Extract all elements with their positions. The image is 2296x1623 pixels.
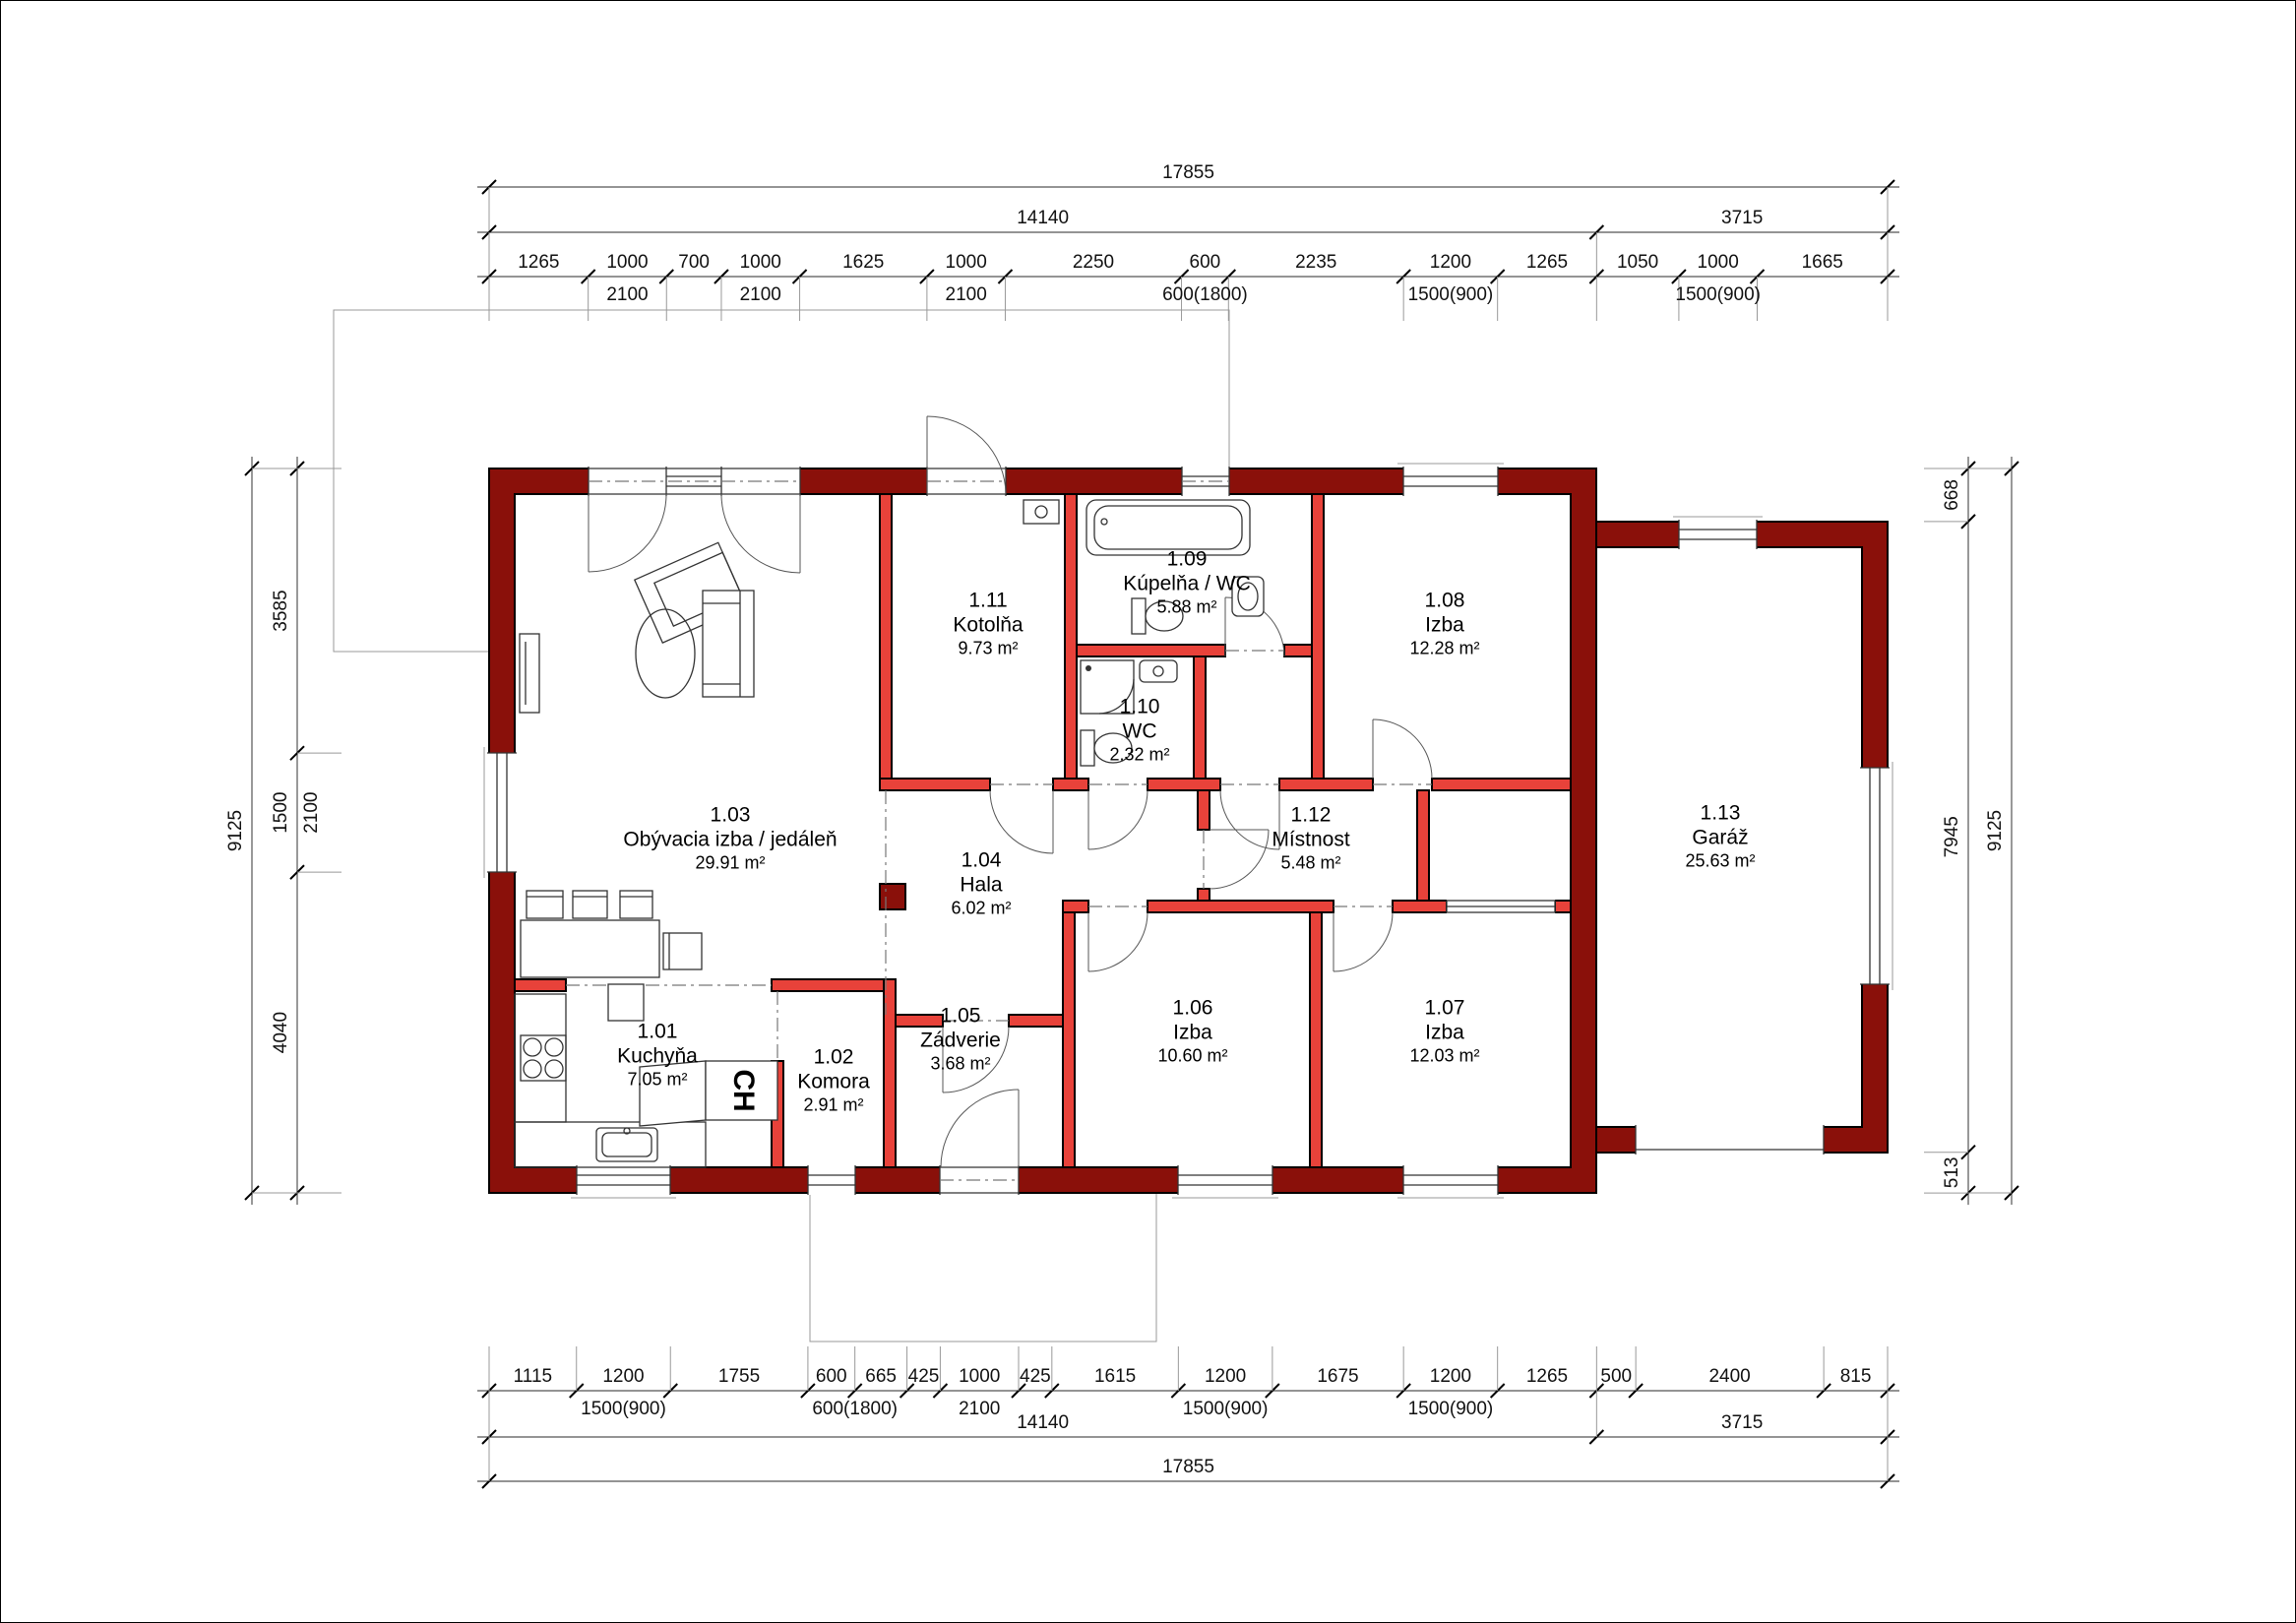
- dimension-label: 3715: [1721, 208, 1763, 228]
- dimension-label: 1755: [718, 1366, 760, 1387]
- fridge-label: CH: [727, 1069, 760, 1111]
- dimension-label: 1000: [606, 252, 648, 273]
- washbasin-wc: [1140, 660, 1177, 682]
- dimension-label: 513: [1942, 1157, 1962, 1189]
- dimension-label: 1200: [1430, 252, 1471, 273]
- cabinet: [608, 984, 644, 1021]
- dimension-label: 1500: [271, 792, 291, 834]
- dimension-label: 1500(900): [1675, 284, 1761, 305]
- floor-plan-drawing: CH 1785514140371512651000210070010002100…: [0, 0, 2296, 1623]
- dimension-label: 600: [816, 1366, 847, 1387]
- bathtub: [1086, 500, 1250, 555]
- room-label-1-10: 1.10WC2.32 m²: [1109, 696, 1169, 766]
- dimension-label: 1115: [514, 1366, 552, 1387]
- dimension-label: 2100: [946, 284, 987, 305]
- dimension-label: 600(1800): [1162, 284, 1248, 305]
- dimension-label: 1265: [1526, 1366, 1568, 1387]
- dimension-label: 815: [1840, 1366, 1872, 1387]
- dimension-label: 1050: [1617, 252, 1658, 273]
- chimney: [880, 884, 905, 909]
- dimension-label: 1200: [602, 1366, 644, 1387]
- dimension-label: 14140: [1017, 208, 1069, 228]
- dimension-label: 1500(900): [1183, 1399, 1269, 1419]
- dimension-label: 2235: [1295, 252, 1336, 273]
- dimension-label: 2100: [959, 1399, 1000, 1419]
- dimension-label: 1200: [1205, 1366, 1246, 1387]
- sofa: [703, 591, 754, 697]
- dimension-label: 2100: [740, 284, 781, 305]
- dimension-label: 1200: [1430, 1366, 1471, 1387]
- dimension-label: 668: [1942, 479, 1962, 511]
- room-label-1-02: 1.02Komora2.91 m²: [797, 1046, 870, 1116]
- door-swings: [589, 416, 1432, 1167]
- dimension-label: 17855: [1162, 1457, 1214, 1477]
- room-label-1-04: 1.04Hala6.02 m²: [951, 849, 1011, 919]
- dimension-label: 500: [1600, 1366, 1632, 1387]
- tv-cabinet: [520, 634, 539, 713]
- dimension-label: 2250: [1073, 252, 1114, 273]
- dimension-label: 9125: [1985, 810, 2006, 851]
- room-label-1-13: 1.13Garáž25.63 m²: [1685, 802, 1755, 872]
- dimension-label: 1500(900): [1408, 1399, 1494, 1419]
- dimension-label: 665: [865, 1366, 897, 1387]
- cooktop: [521, 1035, 566, 1081]
- room-label-1-06: 1.06Izba10.60 m²: [1157, 997, 1227, 1067]
- room-label-1-09: 1.09Kúpelňa / WC5.88 m²: [1123, 548, 1251, 618]
- room-label-1-08: 1.08Izba12.28 m²: [1409, 590, 1479, 659]
- dimension-label: 3715: [1721, 1412, 1763, 1433]
- dimension-label: 1665: [1802, 252, 1843, 273]
- dimension-label: 4040: [271, 1012, 291, 1053]
- dimension-label: 1500(900): [581, 1399, 666, 1419]
- dimension-label: 1000: [959, 1366, 1000, 1387]
- dimension-label: 7945: [1942, 816, 1962, 857]
- dimension-label: 1500(900): [1408, 284, 1494, 305]
- dimension-label: 600: [1190, 252, 1221, 273]
- room-label-1-12: 1.12Místnost5.48 m²: [1272, 804, 1349, 874]
- room-label-1-03: 1.03Obývacia izba / jedáleň29.91 m²: [623, 804, 837, 874]
- dining-set: [521, 891, 702, 977]
- dimension-label: 3585: [271, 590, 291, 631]
- dimension-label: 9125: [225, 810, 246, 851]
- dimension-label: 1675: [1317, 1366, 1358, 1387]
- room-label-1-11: 1.11Kotolňa9.73 m²: [953, 590, 1023, 659]
- dimension-label: 1625: [842, 252, 884, 273]
- boiler-basin: [1024, 500, 1059, 524]
- dimension-label: 1000: [1698, 252, 1739, 273]
- dimension-label: 425: [1020, 1366, 1051, 1387]
- dimension-label: 1000: [946, 252, 987, 273]
- room-label-1-07: 1.07Izba12.03 m²: [1409, 997, 1479, 1067]
- dimension-label: 425: [908, 1366, 940, 1387]
- floor-plan-sheet: CH 1785514140371512651000210070010002100…: [0, 0, 2296, 1623]
- room-label-1-01: 1.01Kuchyňa7.05 m²: [617, 1021, 698, 1091]
- dimension-label: 14140: [1017, 1412, 1069, 1433]
- dimension-label: 1615: [1094, 1366, 1136, 1387]
- dimension-label: 600(1800): [812, 1399, 898, 1419]
- dimension-label: 2100: [606, 284, 648, 305]
- dimension-label: 1000: [740, 252, 781, 273]
- dimension-label: 1265: [1526, 252, 1568, 273]
- dimension-label: 2100: [301, 792, 322, 834]
- dimension-label: 2400: [1708, 1366, 1750, 1387]
- dimension-label: 700: [678, 252, 710, 273]
- dimension-label: 17855: [1162, 162, 1214, 183]
- dimension-label: 1265: [518, 252, 559, 273]
- room-label-1-05: 1.05Zádverie3.68 m²: [920, 1005, 1001, 1075]
